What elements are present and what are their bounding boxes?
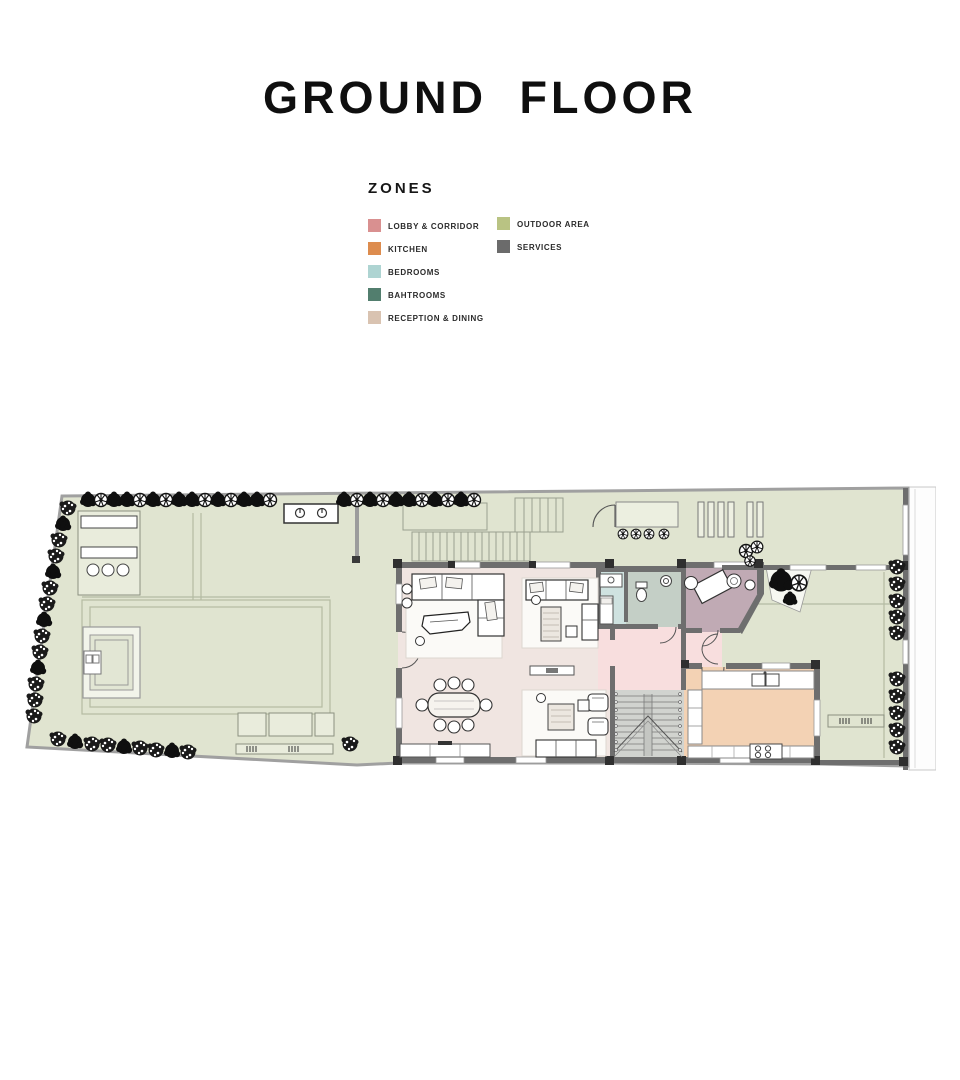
armchair xyxy=(588,694,608,711)
guest-chair xyxy=(745,580,755,590)
legend-item-reception: RECEPTION & DINING xyxy=(368,311,484,324)
legend-column-2: OUTDOOR AREA SERVICES xyxy=(497,217,590,263)
zone-label: RECEPTION & DINING xyxy=(388,312,484,323)
armchair xyxy=(588,718,608,735)
zone-swatch-reception xyxy=(368,311,381,324)
zone-swatch-kitchen xyxy=(368,242,381,255)
page-title: GROUND FLOOR xyxy=(0,72,960,124)
coffee-table xyxy=(548,704,574,730)
floor-plan xyxy=(20,484,936,786)
zone-label: BEDROOMS xyxy=(388,266,440,277)
zone-swatch-outdoor xyxy=(497,217,510,230)
bbq-grill-icon xyxy=(284,504,338,523)
zone-label: BAHTROOMS xyxy=(388,289,446,300)
sideboard xyxy=(400,744,490,757)
legend-column-1: LOBBY & CORRIDOR KITCHEN BEDROOMS BAHTRO… xyxy=(368,219,484,334)
legend-item-outdoor: OUTDOOR AREA xyxy=(497,217,590,230)
zone-label: LOBBY & CORRIDOR xyxy=(388,220,479,231)
zone-swatch-services xyxy=(497,240,510,253)
zone-swatch-bathrooms xyxy=(368,288,381,301)
wood-table xyxy=(541,607,561,641)
zone-swatch-bedrooms xyxy=(368,265,381,278)
road-strip xyxy=(909,487,936,770)
zone-label: OUTDOOR AREA xyxy=(517,218,590,229)
garden-pavilion xyxy=(83,627,140,698)
zones-legend: ZONES LOBBY & CORRIDOR KITCHEN BEDROOMS … xyxy=(368,180,628,219)
chaise xyxy=(582,604,598,640)
zone-swatch-lobby xyxy=(368,219,381,232)
basin-icon xyxy=(661,576,672,587)
pergola-slats xyxy=(698,502,763,537)
poster-canvas: GROUND FLOOR ZONES LOBBY & CORRIDOR KITC… xyxy=(0,0,960,1080)
sink-icon xyxy=(752,674,765,686)
bathroom-floor xyxy=(626,570,684,627)
zone-label: SERVICES xyxy=(517,241,562,252)
outdoor-bar xyxy=(78,511,140,595)
garden-planters xyxy=(236,713,334,754)
legend-item-kitchen: KITCHEN xyxy=(368,242,484,255)
zone-label: KITCHEN xyxy=(388,243,428,254)
toilet-icon xyxy=(636,582,647,588)
legend-item-lobby: LOBBY & CORRIDOR xyxy=(368,219,484,232)
guest-chair xyxy=(727,574,741,588)
legend-item-bedrooms: BEDROOMS xyxy=(368,265,484,278)
desk-chair xyxy=(685,577,698,590)
legend-item-services: SERVICES xyxy=(497,240,590,253)
legend-heading: ZONES xyxy=(368,180,628,197)
sofa xyxy=(536,740,596,757)
legend-item-bathrooms: BAHTROOMS xyxy=(368,288,484,301)
dining-table xyxy=(428,693,480,717)
